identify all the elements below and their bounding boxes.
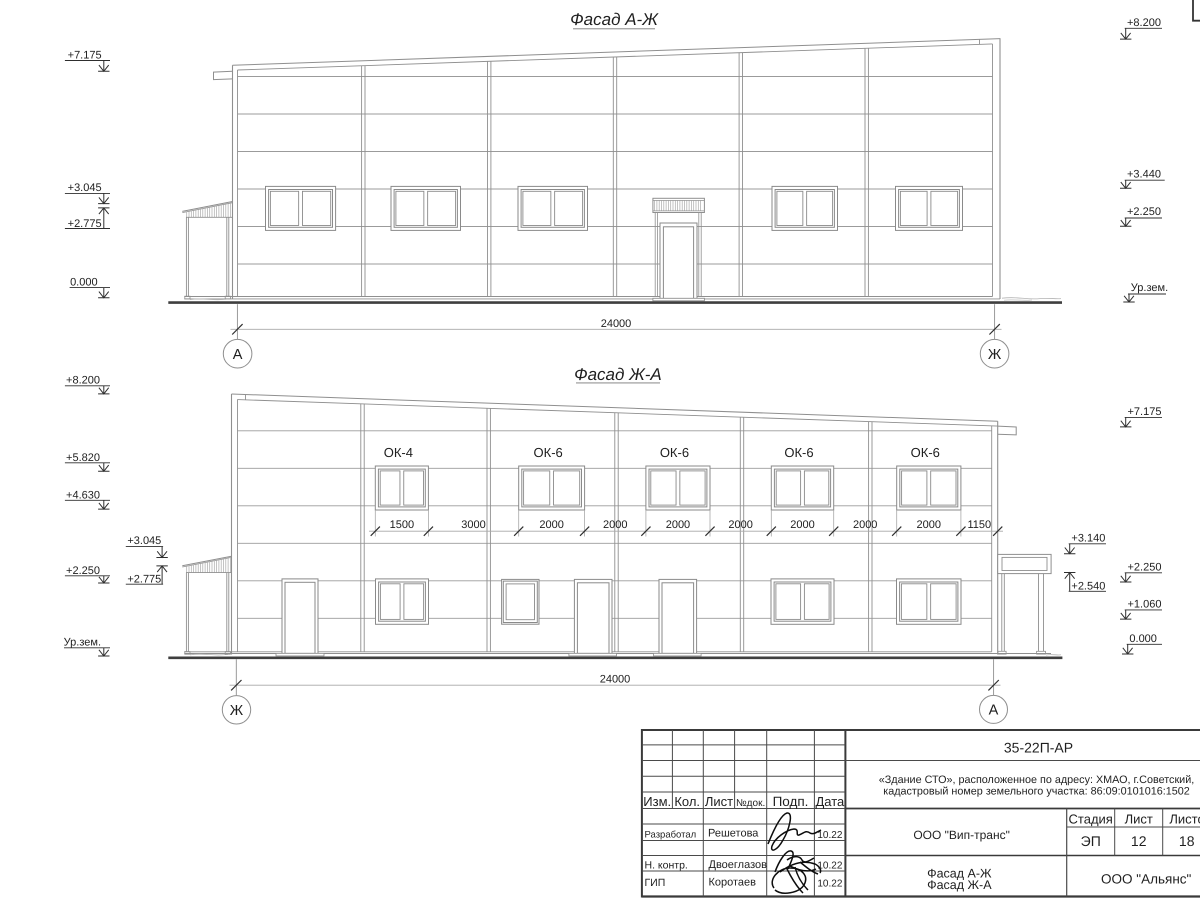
svg-text:+3.440: +3.440 (1127, 168, 1161, 180)
svg-text:+2.775: +2.775 (127, 573, 161, 585)
svg-text:+1.060: +1.060 (1128, 599, 1162, 611)
svg-text:+2.250: +2.250 (66, 565, 100, 577)
svg-text:+2.250: +2.250 (1127, 206, 1161, 218)
svg-text:Дата: Дата (816, 794, 846, 809)
svg-text:Кол.: Кол. (674, 794, 700, 809)
svg-text:Ур.зем.: Ур.зем. (1131, 282, 1168, 294)
svg-text:24000: 24000 (600, 674, 631, 686)
svg-text:+5.820: +5.820 (66, 452, 100, 464)
svg-text:Ж: Ж (230, 703, 244, 719)
svg-text:2000: 2000 (917, 519, 941, 531)
svg-text:Изм.: Изм. (643, 794, 671, 809)
svg-text:2000: 2000 (603, 519, 627, 531)
svg-text:Подп.: Подп. (773, 794, 809, 809)
svg-text:2000: 2000 (790, 519, 814, 531)
svg-text:№док.: №док. (736, 798, 765, 809)
svg-text:Лист: Лист (1125, 812, 1153, 827)
svg-text:1150: 1150 (967, 519, 991, 531)
svg-text:Разработал: Разработал (645, 830, 697, 841)
svg-text:0.000: 0.000 (1129, 633, 1157, 645)
svg-text:+3.140: +3.140 (1071, 532, 1105, 544)
svg-text:Ур.зем.: Ур.зем. (64, 637, 101, 649)
svg-text:2000: 2000 (728, 519, 752, 531)
svg-text:1500: 1500 (390, 519, 414, 531)
svg-text:3000: 3000 (461, 519, 485, 531)
svg-text:Н. контр.: Н. контр. (645, 860, 688, 872)
svg-text:Двоеглазов: Двоеглазов (709, 859, 768, 871)
svg-text:2000: 2000 (539, 519, 563, 531)
svg-text:ОК-4: ОК-4 (384, 445, 413, 460)
svg-text:ООО "Вип-транс": ООО "Вип-транс" (913, 828, 1010, 842)
svg-text:35-22П-АР: 35-22П-АР (1004, 739, 1073, 755)
svg-text:Ж: Ж (988, 347, 1002, 363)
svg-text:ОК-6: ОК-6 (660, 445, 689, 460)
svg-text:2000: 2000 (666, 519, 690, 531)
svg-text:Решетова: Решетова (708, 827, 759, 839)
svg-text:+8.200: +8.200 (66, 375, 100, 387)
svg-text:2000: 2000 (853, 519, 877, 531)
svg-text:+4.630: +4.630 (66, 490, 100, 502)
svg-text:Стадия: Стадия (1069, 812, 1113, 827)
svg-text:+7.175: +7.175 (68, 49, 102, 61)
svg-text:Листов: Листов (1169, 812, 1200, 827)
svg-text:ГИП: ГИП (645, 877, 666, 889)
svg-text:18: 18 (1179, 833, 1195, 849)
svg-text:А: А (989, 703, 999, 719)
svg-text:24000: 24000 (601, 318, 632, 330)
svg-text:+3.045: +3.045 (127, 535, 161, 547)
svg-text:А: А (233, 347, 243, 363)
svg-text:+2.250: +2.250 (1128, 561, 1162, 573)
svg-text:ЭП: ЭП (1081, 833, 1101, 849)
svg-text:Лист: Лист (705, 794, 733, 809)
svg-text:Фасад Ж-А: Фасад Ж-А (927, 878, 992, 892)
svg-text:+3.045: +3.045 (68, 182, 102, 194)
svg-text:+7.175: +7.175 (1128, 406, 1162, 418)
svg-text:Коротаев: Коротаев (709, 877, 757, 889)
svg-text:10.22: 10.22 (817, 878, 842, 889)
svg-text:кадастровый номер земельного у: кадастровый номер земельного участка: 86… (883, 785, 1189, 797)
svg-text:12: 12 (1131, 833, 1147, 849)
svg-text:ОК-6: ОК-6 (534, 445, 563, 460)
svg-text:ОК-6: ОК-6 (911, 445, 940, 460)
svg-text:Фасад А-Ж: Фасад А-Ж (570, 10, 659, 29)
svg-text:Фасад Ж-А: Фасад Ж-А (574, 365, 662, 384)
svg-text:ООО "Альянс": ООО "Альянс" (1101, 871, 1191, 886)
svg-text:0.000: 0.000 (70, 277, 98, 289)
svg-text:+8.200: +8.200 (1127, 17, 1161, 29)
svg-text:«Здание СТО», расположенное по: «Здание СТО», расположенное по адресу: Х… (879, 774, 1194, 786)
svg-text:10.22: 10.22 (817, 830, 842, 841)
svg-text:ОК-6: ОК-6 (784, 445, 813, 460)
